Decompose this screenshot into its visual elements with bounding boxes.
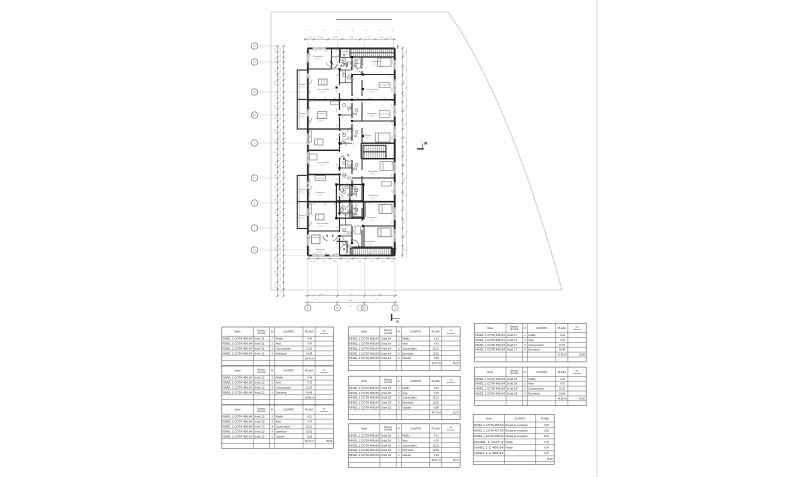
svg-text:Dormitorio: Dormitorio xyxy=(316,117,326,120)
svg-text:0,90: 0,90 xyxy=(309,90,311,93)
svg-text:NIVEL 1 COTA 456,64: NIVEL 1 COTA 456,64 xyxy=(349,338,379,341)
svg-text:Unid 16: Unid 16 xyxy=(381,454,392,457)
svg-text:1,20: 1,20 xyxy=(368,204,371,206)
svg-text:11,63: 11,63 xyxy=(306,347,313,350)
svg-text:Unid 17: Unid 17 xyxy=(507,344,518,347)
svg-text:Unid 13: Unid 13 xyxy=(254,421,265,424)
svg-text:35,41: 35,41 xyxy=(453,362,460,365)
svg-text:NIVEL 1 COTA 456,64: NIVEL 1 COTA 456,64 xyxy=(349,434,379,437)
svg-text:3,05: 3,05 xyxy=(337,208,339,211)
svg-text:Dormitorio: Dormitorio xyxy=(402,402,414,405)
svg-text:2,18: 2,18 xyxy=(309,150,311,153)
svg-text:terrazas: terrazas xyxy=(573,372,582,375)
svg-text:NIVEL 1 COTA 456,64: NIVEL 1 COTA 456,64 xyxy=(475,388,505,391)
svg-text:CUARTO: CUARTO xyxy=(410,330,421,334)
svg-text:3,45: 3,45 xyxy=(544,424,549,427)
svg-text:2,18: 2,18 xyxy=(337,90,339,93)
svg-text:Unid 13: Unid 13 xyxy=(254,425,265,428)
svg-text:NIVEL 1 COTA 456,64: NIVEL 1 COTA 456,64 xyxy=(223,352,253,355)
svg-text:de Unid: de Unid xyxy=(510,373,519,375)
svg-text:29,65: 29,65 xyxy=(326,440,333,443)
svg-text:NIVEL 1 COTA 457,54: NIVEL 1 COTA 457,54 xyxy=(474,429,504,432)
svg-text:10,48: 10,48 xyxy=(306,391,313,394)
svg-text:Área: Área xyxy=(276,382,282,385)
svg-text:Unid 12: Unid 12 xyxy=(254,391,265,394)
svg-text:2,18: 2,18 xyxy=(309,220,311,223)
svg-text:Dormitorio: Dormitorio xyxy=(315,248,325,251)
svg-text:CUARTO: CUARTO xyxy=(283,369,294,373)
svg-text:13,62: 13,62 xyxy=(433,352,440,355)
svg-text:11,63 m²: 11,63 m² xyxy=(299,115,306,118)
svg-text:terrazas: terrazas xyxy=(320,371,329,374)
svg-text:Nivel: Nivel xyxy=(235,369,241,373)
svg-text:Unid 16: Unid 16 xyxy=(381,434,392,437)
svg-text:2,18: 2,18 xyxy=(356,51,359,53)
svg-text:4,79: 4,79 xyxy=(307,343,312,346)
svg-text:terrazas: terrazas xyxy=(320,332,329,335)
svg-text:Unid 17: Unid 17 xyxy=(507,334,518,337)
svg-text:6,99: 6,99 xyxy=(434,357,439,360)
svg-text:Comunicación: Comunicación xyxy=(528,344,544,347)
svg-text:4,58: 4,58 xyxy=(378,294,382,296)
svg-text:K: K xyxy=(254,176,256,180)
svg-text:1,45: 1,45 xyxy=(275,174,277,178)
svg-text:1,10: 1,10 xyxy=(390,261,394,263)
svg-text:Nivel: Nivel xyxy=(487,370,493,374)
svg-text:4,21: 4,21 xyxy=(307,416,312,419)
svg-text:Nº: Nº xyxy=(398,379,401,383)
svg-text:CUARTO: CUARTO xyxy=(515,416,526,420)
svg-text:1,64: 1,64 xyxy=(353,62,355,65)
svg-text:2,18: 2,18 xyxy=(336,30,340,32)
svg-text:7,65 m²: 7,65 m² xyxy=(365,137,371,140)
svg-text:3,05: 3,05 xyxy=(324,253,327,255)
svg-text:2,45: 2,45 xyxy=(337,242,339,245)
svg-text:Unid 15: Unid 15 xyxy=(381,392,392,395)
svg-text:2,45: 2,45 xyxy=(392,220,394,223)
svg-text:3,44: 3,44 xyxy=(307,377,312,380)
svg-text:4,79: 4,79 xyxy=(307,382,312,385)
svg-text:terrazas: terrazas xyxy=(320,410,329,413)
svg-text:Comunicación: Comunicación xyxy=(276,386,292,389)
svg-text:1,20: 1,20 xyxy=(337,178,339,181)
svg-text:NIVEL 1 COTA 456,64: NIVEL 1 COTA 456,64 xyxy=(223,416,253,419)
svg-text:Terraza: Terraza xyxy=(299,188,307,191)
svg-text:Rectas de escaleras: Rectas de escaleras xyxy=(506,424,529,427)
svg-text:Baño: Baño xyxy=(343,62,349,65)
svg-text:8,90 m²: 8,90 m² xyxy=(342,53,348,56)
svg-text:15,21: 15,21 xyxy=(433,397,440,400)
svg-text:Unid 13: Unid 13 xyxy=(254,416,265,419)
svg-text:12,30 m²: 12,30 m² xyxy=(298,191,305,194)
svg-text:2,93: 2,93 xyxy=(350,30,354,32)
svg-text:Unid 14: Unid 14 xyxy=(381,338,392,341)
svg-text:NIVEL 1 COTA 456,64: NIVEL 1 COTA 456,64 xyxy=(349,402,379,405)
svg-text:2,45: 2,45 xyxy=(356,253,359,255)
svg-text:2,05: 2,05 xyxy=(333,261,337,263)
svg-text:50,04 m²: 50,04 m² xyxy=(305,440,315,443)
svg-text:NIVEL 1 COTA 456,64: NIVEL 1 COTA 456,64 xyxy=(223,425,253,428)
svg-text:1,20: 1,20 xyxy=(324,51,327,53)
svg-text:Nº: Nº xyxy=(524,326,527,330)
svg-text:2,30: 2,30 xyxy=(404,220,406,223)
svg-text:Unid 15: Unid 15 xyxy=(381,402,392,405)
svg-text:Área: Área xyxy=(402,392,408,395)
svg-text:1,45: 1,45 xyxy=(275,223,277,227)
svg-text:Pasillo: Pasillo xyxy=(528,378,536,381)
svg-text:Dormitorio: Dormitorio xyxy=(368,170,378,173)
svg-text:1,05: 1,05 xyxy=(275,129,277,133)
svg-text:4,76: 4,76 xyxy=(307,421,312,424)
svg-text:3,05: 3,05 xyxy=(309,179,311,182)
svg-text:Unid 16: Unid 16 xyxy=(381,439,392,442)
svg-text:Número: Número xyxy=(257,407,266,410)
svg-text:1,05: 1,05 xyxy=(275,117,277,121)
svg-text:Baño: Baño xyxy=(343,138,349,141)
svg-text:Dormitorio: Dormitorio xyxy=(367,216,377,219)
svg-text:NIVEL 1 COTA 458,44: NIVEL 1 COTA 458,44 xyxy=(474,435,504,438)
svg-text:PLAZA: PLAZA xyxy=(541,416,549,420)
svg-text:2,45: 2,45 xyxy=(309,248,311,251)
svg-text:Dormitorio: Dormitorio xyxy=(365,240,375,243)
svg-text:de Unid: de Unid xyxy=(384,333,393,335)
svg-text:2,10: 2,10 xyxy=(322,261,326,263)
svg-text:3,35: 3,35 xyxy=(349,294,353,296)
svg-text:2,45: 2,45 xyxy=(353,128,355,131)
svg-text:6,99: 6,99 xyxy=(307,435,312,438)
svg-text:O: O xyxy=(253,60,255,64)
svg-text:34,05 m²: 34,05 m² xyxy=(558,397,568,400)
svg-text:14,30: 14,30 xyxy=(348,300,353,302)
svg-text:1,45: 1,45 xyxy=(275,48,277,52)
svg-text:2,30: 2,30 xyxy=(322,30,326,32)
svg-text:Cocina-salón: Cocina-salón xyxy=(402,397,417,400)
svg-text:2,45: 2,45 xyxy=(309,120,311,123)
svg-text:Nº: Nº xyxy=(271,369,274,373)
svg-text:NIVEL 1 COTA 456,64: NIVEL 1 COTA 456,64 xyxy=(475,378,505,381)
svg-text:2,18: 2,18 xyxy=(368,51,371,53)
svg-text:3,10: 3,10 xyxy=(404,248,406,251)
svg-text:4,76: 4,76 xyxy=(434,439,439,442)
svg-text:Pasillo: Pasillo xyxy=(402,387,410,390)
svg-text:Terraza: Terraza xyxy=(299,83,307,86)
svg-text:2,18: 2,18 xyxy=(392,161,394,164)
svg-text:Nivel: Nivel xyxy=(487,326,493,330)
svg-text:de Unid: de Unid xyxy=(510,329,519,331)
svg-text:CUARTO: CUARTO xyxy=(283,408,294,412)
svg-text:Comunicación: Comunicación xyxy=(528,388,544,391)
svg-text:NIVEL 1 COTA 456,64: NIVEL 1 COTA 456,64 xyxy=(349,444,379,447)
svg-text:Pasillo: Pasillo xyxy=(506,446,514,449)
svg-text:Nº: Nº xyxy=(271,408,274,412)
svg-text:1,20: 1,20 xyxy=(337,124,339,127)
svg-text:3,44: 3,44 xyxy=(560,378,565,381)
svg-text:NIVEL 1 C 456,64: NIVEL 1 C 456,64 xyxy=(474,446,504,449)
svg-text:3,05: 3,05 xyxy=(337,163,339,166)
svg-text:PLAZA: PLAZA xyxy=(305,330,313,334)
svg-text:Pasillo: Pasillo xyxy=(528,334,536,337)
svg-text:1,45: 1,45 xyxy=(275,151,277,155)
svg-text:de Unid: de Unid xyxy=(384,430,393,432)
svg-text:7,65 m²: 7,65 m² xyxy=(369,219,375,222)
svg-text:PLAZA: PLAZA xyxy=(432,427,440,431)
svg-text:Rectas de escaleras: Rectas de escaleras xyxy=(506,429,529,432)
svg-text:Número: Número xyxy=(384,379,393,382)
svg-text:0,90: 0,90 xyxy=(275,236,277,240)
svg-text:Dormitorio: Dormitorio xyxy=(528,349,540,352)
svg-text:1,05: 1,05 xyxy=(275,284,277,288)
svg-text:Unid 11: Unid 11 xyxy=(254,343,265,346)
svg-text:7,65 m²: 7,65 m² xyxy=(320,164,326,167)
svg-text:2,45: 2,45 xyxy=(309,164,311,167)
svg-text:44,79 m²: 44,79 m² xyxy=(432,411,442,414)
svg-text:Citación: Citación xyxy=(402,406,411,409)
svg-text:Dormitorio: Dormitorio xyxy=(276,391,288,394)
svg-text:8,90 m²: 8,90 m² xyxy=(317,251,323,254)
svg-text:11,63: 11,63 xyxy=(306,386,313,389)
svg-text:CUARTO: CUARTO xyxy=(410,379,421,383)
svg-text:1,45: 1,45 xyxy=(404,234,406,237)
svg-text:0,90: 0,90 xyxy=(275,58,277,62)
svg-text:N: N xyxy=(254,90,256,94)
svg-text:Dormitorio: Dormitorio xyxy=(313,55,323,58)
svg-text:NIVEL 1 COTA 456,64: NIVEL 1 COTA 456,64 xyxy=(349,342,379,345)
svg-text:8,90 m²: 8,90 m² xyxy=(369,91,375,94)
svg-text:4,25 m²: 4,25 m² xyxy=(373,63,379,66)
svg-text:Nº: Nº xyxy=(524,370,527,374)
svg-text:1,45: 1,45 xyxy=(404,52,406,55)
svg-text:CUARTO: CUARTO xyxy=(536,326,547,330)
svg-text:1,30: 1,30 xyxy=(390,30,394,32)
svg-text:10,48 m²: 10,48 m² xyxy=(341,177,348,180)
svg-text:0,90: 0,90 xyxy=(392,73,394,76)
svg-text:0,90: 0,90 xyxy=(275,81,277,85)
svg-text:8,90 m²: 8,90 m² xyxy=(319,225,325,228)
svg-text:NIVEL 1 COTA 456,64: NIVEL 1 COTA 456,64 xyxy=(349,352,379,355)
svg-text:Baño: Baño xyxy=(343,174,349,177)
svg-text:2,45: 2,45 xyxy=(353,78,355,81)
svg-text:Nivel: Nivel xyxy=(235,408,241,412)
svg-text:2,30: 2,30 xyxy=(404,136,406,139)
svg-text:11,63 m²: 11,63 m² xyxy=(342,141,349,144)
svg-text:Nivel: Nivel xyxy=(361,427,367,431)
svg-text:13,62: 13,62 xyxy=(433,449,440,452)
svg-text:CUARTO: CUARTO xyxy=(410,427,421,431)
svg-text:NIVEL 1 COTA 456,64: NIVEL 1 COTA 456,64 xyxy=(223,391,253,394)
svg-text:NIVEL 1 COTA 456,64: NIVEL 1 COTA 456,64 xyxy=(474,424,504,427)
svg-text:Nivel: Nivel xyxy=(361,330,367,334)
svg-text:2,45: 2,45 xyxy=(382,97,385,99)
svg-text:Unid 18: Unid 18 xyxy=(507,383,518,386)
svg-text:2,30: 2,30 xyxy=(404,178,406,181)
svg-text:Área: Área xyxy=(402,342,408,345)
svg-text:Citación: Citación xyxy=(402,454,411,457)
svg-text:C: C xyxy=(364,307,366,310)
svg-text:NIVEL 1 COTA 456,64: NIVEL 1 COTA 456,64 xyxy=(223,435,253,438)
svg-text:NIVEL 1 COTA 456,64: NIVEL 1 COTA 456,64 xyxy=(223,386,253,389)
svg-text:Dormitorio: Dormitorio xyxy=(371,60,381,63)
svg-text:Unid 11: Unid 11 xyxy=(254,338,265,341)
svg-text:0,90: 0,90 xyxy=(392,174,394,177)
svg-text:Unid 11: Unid 11 xyxy=(254,352,265,355)
svg-text:15,21: 15,21 xyxy=(433,347,440,350)
svg-text:4,21: 4,21 xyxy=(434,434,439,437)
svg-text:10,48: 10,48 xyxy=(306,352,313,355)
svg-text:2,30: 2,30 xyxy=(275,186,277,190)
svg-text:D: D xyxy=(394,307,396,310)
svg-text:4,76: 4,76 xyxy=(434,342,439,345)
svg-text:Área: Área xyxy=(276,343,282,346)
svg-text:1,45: 1,45 xyxy=(404,108,406,111)
svg-text:3,10: 3,10 xyxy=(404,164,406,167)
svg-text:10,48: 10,48 xyxy=(559,392,566,395)
svg-text:de Unid: de Unid xyxy=(257,372,266,374)
svg-text:Pasillo: Pasillo xyxy=(276,377,284,380)
svg-text:2,18: 2,18 xyxy=(353,246,355,249)
svg-text:Dormitorio: Dormitorio xyxy=(276,352,288,355)
svg-text:3,35: 3,35 xyxy=(544,429,549,432)
svg-text:2,18: 2,18 xyxy=(353,212,355,215)
svg-text:PLAZA: PLAZA xyxy=(305,408,313,412)
svg-text:PLAZA: PLAZA xyxy=(305,369,313,373)
svg-text:Dormitorio: Dormitorio xyxy=(315,191,325,194)
svg-text:15,21: 15,21 xyxy=(306,425,313,428)
svg-text:terrazas: terrazas xyxy=(573,328,582,331)
svg-text:NIVEL 1 COTA 456,64: NIVEL 1 COTA 456,64 xyxy=(349,397,379,400)
svg-text:Unid 18: Unid 18 xyxy=(507,388,518,391)
svg-text:11,63: 11,63 xyxy=(559,388,566,391)
svg-text:1,78: 1,78 xyxy=(544,441,549,444)
svg-text:Unid 16: Unid 16 xyxy=(381,449,392,452)
svg-text:2,45: 2,45 xyxy=(392,104,394,107)
svg-text:NIVEL 1 COTA 456,64: NIVEL 1 COTA 456,64 xyxy=(475,344,505,347)
svg-text:3,05: 3,05 xyxy=(333,97,336,99)
svg-text:12,30 m²: 12,30 m² xyxy=(314,58,321,61)
svg-text:Número: Número xyxy=(384,426,393,429)
svg-text:Unid 15: Unid 15 xyxy=(381,397,392,400)
svg-text:Dormitorio: Dormitorio xyxy=(402,449,414,452)
svg-text:NIVEL 1 COTA 456,64: NIVEL 1 COTA 456,64 xyxy=(349,347,379,350)
svg-text:Dormitorio: Dormitorio xyxy=(276,430,288,433)
svg-text:4,93: 4,93 xyxy=(307,30,311,32)
svg-text:1,20: 1,20 xyxy=(392,121,394,124)
svg-text:Comunicación: Comunicación xyxy=(276,347,292,350)
svg-text:Cocina-salón: Cocina-salón xyxy=(402,347,417,350)
svg-text:2,45: 2,45 xyxy=(353,112,355,115)
svg-text:Rectas de escaleras: Rectas de escaleras xyxy=(506,435,529,438)
svg-text:0,90: 0,90 xyxy=(404,66,406,69)
svg-text:2,18: 2,18 xyxy=(313,51,316,53)
svg-text:1,80: 1,80 xyxy=(311,261,315,263)
svg-text:3,05: 3,05 xyxy=(309,53,311,56)
svg-text:Número: Número xyxy=(510,326,519,329)
svg-text:Pasillo: Pasillo xyxy=(402,338,410,341)
svg-text:Área: Área xyxy=(276,421,282,424)
svg-text:Unid 16: Unid 16 xyxy=(381,444,392,447)
svg-text:11,63 m²: 11,63 m² xyxy=(369,115,376,118)
svg-text:P: P xyxy=(254,44,256,48)
svg-text:Citación: Citación xyxy=(402,357,411,360)
svg-text:50,07 m²: 50,07 m² xyxy=(432,459,442,462)
svg-text:2,18: 2,18 xyxy=(323,97,326,99)
svg-text:1,05: 1,05 xyxy=(275,70,277,74)
svg-text:1,20: 1,20 xyxy=(309,76,311,79)
svg-text:0,90: 0,90 xyxy=(275,198,277,202)
svg-text:2,45: 2,45 xyxy=(392,189,394,192)
svg-text:Unid 17: Unid 17 xyxy=(507,339,518,342)
svg-text:3,10: 3,10 xyxy=(404,192,406,195)
svg-text:Unid 13: Unid 13 xyxy=(254,430,265,433)
svg-text:CUARTO: CUARTO xyxy=(536,370,547,374)
svg-text:Dormitorio: Dormitorio xyxy=(367,112,377,115)
svg-text:1,05: 1,05 xyxy=(275,94,277,98)
svg-text:12,30 m²: 12,30 m² xyxy=(298,217,305,220)
svg-text:0,90: 0,90 xyxy=(404,80,406,83)
svg-text:NIVEL 1 COTA 456,64: NIVEL 1 COTA 456,64 xyxy=(349,392,379,395)
svg-text:4,76: 4,76 xyxy=(434,392,439,395)
svg-text:2,18: 2,18 xyxy=(382,204,385,206)
svg-text:1,45: 1,45 xyxy=(275,270,277,274)
svg-text:Unid 15: Unid 15 xyxy=(381,406,392,409)
svg-text:25,53: 25,53 xyxy=(547,458,554,461)
svg-text:29,76 m²: 29,76 m² xyxy=(305,357,315,360)
svg-text:Número: Número xyxy=(257,329,266,332)
svg-text:NIVEL 1 COTA 456,64: NIVEL 1 COTA 456,64 xyxy=(223,430,253,433)
svg-text:Dormitorio: Dormitorio xyxy=(402,352,414,355)
svg-text:1,64: 1,64 xyxy=(309,106,311,109)
svg-text:11,63 m²: 11,63 m² xyxy=(320,91,327,94)
svg-text:14,30: 14,30 xyxy=(348,306,353,308)
svg-text:Nº: Nº xyxy=(398,427,401,431)
svg-text:Terraza: Terraza xyxy=(299,112,307,115)
svg-text:0,90: 0,90 xyxy=(323,204,326,206)
svg-text:0,90: 0,90 xyxy=(388,253,391,255)
svg-text:de Unid: de Unid xyxy=(384,382,393,384)
svg-text:Número: Número xyxy=(257,368,266,371)
svg-text:2,45: 2,45 xyxy=(392,60,394,63)
svg-text:2,25: 2,25 xyxy=(357,261,361,263)
svg-text:NIVEL 1 COTA 456,64: NIVEL 1 COTA 456,64 xyxy=(349,387,379,390)
svg-text:terrazas: terrazas xyxy=(447,429,456,432)
svg-text:de Unid: de Unid xyxy=(257,411,266,413)
svg-text:1,45: 1,45 xyxy=(404,206,406,209)
svg-text:2,30: 2,30 xyxy=(404,122,406,125)
svg-text:1,05: 1,05 xyxy=(404,150,406,153)
svg-text:Unid 15: Unid 15 xyxy=(381,387,392,390)
svg-text:4,15: 4,15 xyxy=(544,452,549,455)
svg-text:Dormitorio: Dormitorio xyxy=(528,392,540,395)
svg-text:4,34: 4,34 xyxy=(544,446,549,449)
svg-text:12,30 m²: 12,30 m² xyxy=(369,197,376,200)
svg-text:Unid 14: Unid 14 xyxy=(381,357,392,360)
svg-text:1,64: 1,64 xyxy=(337,58,339,61)
svg-text:2,45: 2,45 xyxy=(392,136,394,139)
svg-text:34,10: 34,10 xyxy=(579,397,586,400)
svg-text:2,45: 2,45 xyxy=(364,30,368,32)
svg-text:2,18: 2,18 xyxy=(309,192,311,195)
svg-text:Área: Área xyxy=(402,439,408,442)
svg-text:2,18: 2,18 xyxy=(353,198,355,201)
svg-text:1,20: 1,20 xyxy=(392,235,394,238)
svg-text:4,25 m²: 4,25 m² xyxy=(367,243,373,246)
svg-text:1,64: 1,64 xyxy=(380,253,383,255)
svg-text:NIVEL 1 COTA 456,64: NIVEL 1 COTA 456,64 xyxy=(223,343,253,346)
svg-text:NIVEL 1 COTA 456,64: NIVEL 1 COTA 456,64 xyxy=(349,449,379,452)
svg-text:2,18: 2,18 xyxy=(353,94,355,97)
svg-text:NIVEL 1 COTA 456,64: NIVEL 1 COTA 456,64 xyxy=(223,382,253,385)
svg-text:Área: Área xyxy=(528,383,534,386)
svg-text:1,64: 1,64 xyxy=(337,226,339,229)
